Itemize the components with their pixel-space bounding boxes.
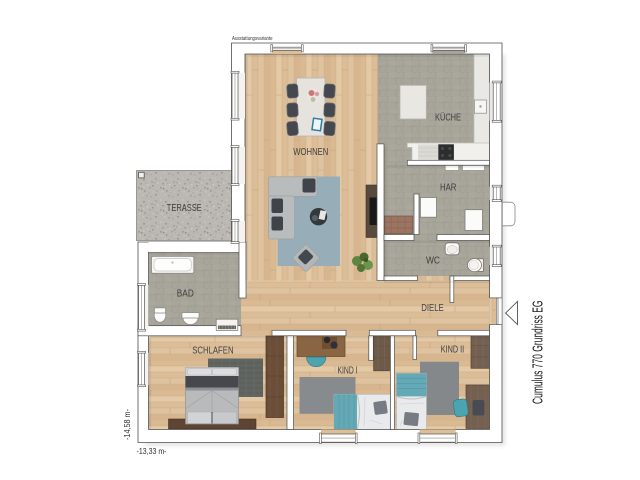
svg-text:WC: WC [426,256,440,267]
svg-text:-14,58 m-: -14,58 m- [123,409,132,440]
svg-text:KÜCHE: KÜCHE [435,111,461,123]
svg-text:TERASSE: TERASSE [167,203,202,214]
svg-text:SCHLAFEN: SCHLAFEN [192,346,233,357]
svg-text:WOHNEN: WOHNEN [293,147,328,158]
svg-text:HAR: HAR [440,183,457,194]
svg-text:KIND I: KIND I [338,366,358,377]
svg-text:KIND II: KIND II [441,345,464,356]
svg-text:BAD: BAD [177,289,194,300]
svg-text:-13,33 m-: -13,33 m- [137,447,167,456]
svg-text:Ausstattungsvariante: Ausstattungsvariante [232,36,273,42]
svg-text:Cumulus 770 Grundriss EG: Cumulus 770 Grundriss EG [529,301,546,405]
svg-text:DIELE: DIELE [421,303,444,314]
